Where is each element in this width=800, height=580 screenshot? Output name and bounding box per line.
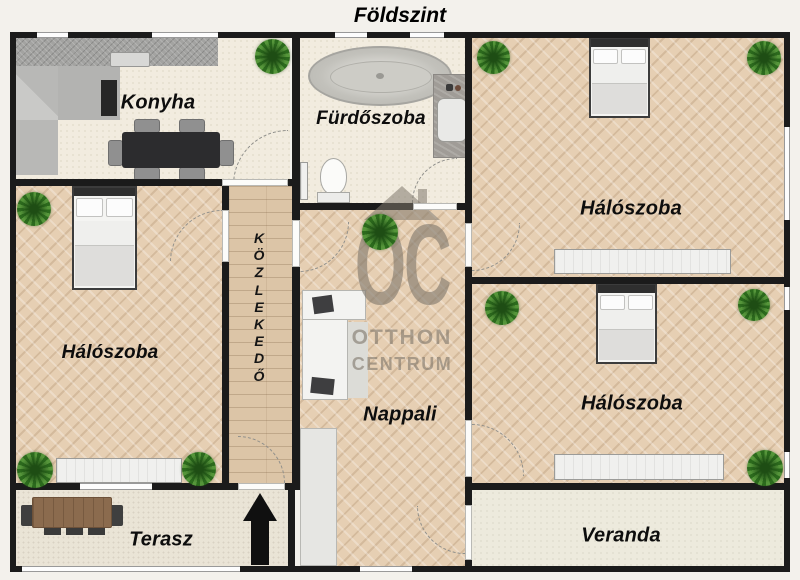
potted-plant-icon bbox=[477, 41, 510, 74]
washbasin bbox=[437, 98, 467, 142]
floor-title: Földszint bbox=[0, 4, 800, 28]
radiator bbox=[554, 454, 724, 480]
potted-plant-icon bbox=[17, 192, 51, 226]
door-bedroom-bottom-right bbox=[465, 420, 472, 477]
wall bbox=[10, 179, 222, 186]
door-entrance bbox=[238, 483, 285, 490]
door-bathroom bbox=[413, 203, 457, 210]
window bbox=[335, 32, 367, 38]
wall bbox=[10, 32, 16, 572]
door-veranda bbox=[465, 505, 472, 560]
wall bbox=[10, 32, 790, 38]
wall bbox=[465, 477, 472, 505]
room-label-living-room: Nappali bbox=[363, 404, 437, 427]
window bbox=[784, 452, 790, 478]
dining-chair bbox=[179, 119, 205, 133]
window bbox=[784, 287, 790, 310]
window bbox=[152, 32, 218, 38]
dining-chair bbox=[134, 119, 160, 133]
window bbox=[22, 566, 240, 572]
door-bedroom-left bbox=[222, 210, 229, 262]
radiator bbox=[300, 162, 308, 200]
potted-plant-icon bbox=[747, 41, 781, 75]
bathroom-faucet bbox=[446, 84, 453, 91]
wall bbox=[472, 483, 790, 490]
potted-plant-icon bbox=[738, 289, 770, 321]
room-label-kitchen: Konyha bbox=[121, 92, 196, 115]
potted-plant-icon bbox=[362, 214, 398, 250]
radiator bbox=[554, 249, 731, 274]
bed bbox=[72, 186, 137, 290]
terrace-table bbox=[32, 497, 112, 528]
bed bbox=[596, 283, 657, 364]
bathroom-accessory bbox=[455, 85, 461, 91]
floor-plan: Földszint OC OTTHON CENTRUM bbox=[0, 0, 800, 580]
room-label-bathroom: Fürdőszoba bbox=[316, 108, 426, 130]
door-kitchen bbox=[222, 179, 288, 186]
door-bedroom-top-right bbox=[465, 223, 472, 267]
window bbox=[80, 483, 152, 490]
wall bbox=[465, 277, 790, 284]
wall bbox=[222, 186, 229, 210]
potted-plant-icon bbox=[747, 450, 783, 486]
wall bbox=[222, 262, 229, 490]
dining-chair bbox=[219, 140, 234, 166]
room-label-terrace: Terasz bbox=[129, 529, 193, 552]
wall bbox=[292, 32, 300, 220]
wall bbox=[465, 560, 472, 572]
window bbox=[37, 32, 68, 38]
room-label-bedroom-left: Hálószoba bbox=[62, 342, 159, 364]
room-label-hallway: KÖZLEKEDŐ bbox=[252, 230, 266, 385]
kitchen-oven bbox=[101, 80, 117, 116]
watermark-otthon-centrum: OC OTTHON CENTRUM bbox=[320, 186, 484, 375]
bathtub bbox=[308, 46, 452, 106]
window bbox=[410, 32, 444, 38]
entrance-arrow-icon bbox=[243, 493, 277, 521]
window bbox=[360, 566, 412, 572]
window bbox=[784, 127, 790, 220]
door-living-room bbox=[292, 220, 300, 267]
watermark-line1: OTTHON bbox=[320, 326, 484, 350]
kitchen-corner-cabinet bbox=[16, 70, 58, 120]
potted-plant-icon bbox=[182, 452, 216, 486]
potted-plant-icon bbox=[17, 452, 53, 488]
room-label-bedroom-top-right: Hálószoba bbox=[580, 198, 682, 221]
kitchen-sink bbox=[110, 52, 150, 67]
sideboard bbox=[300, 428, 337, 566]
room-label-veranda: Veranda bbox=[581, 525, 661, 548]
watermark-line2: CENTRUM bbox=[320, 354, 484, 375]
entrance-arrow-icon bbox=[251, 520, 269, 565]
potted-plant-icon bbox=[255, 39, 290, 74]
radiator bbox=[56, 458, 182, 483]
wall bbox=[288, 483, 295, 572]
potted-plant-icon bbox=[485, 291, 519, 325]
wall bbox=[292, 267, 300, 490]
bed bbox=[589, 37, 650, 118]
room-label-bedroom-bottom-right: Hálószoba bbox=[581, 393, 683, 416]
dining-table bbox=[122, 132, 220, 168]
sofa-pillow bbox=[310, 377, 335, 395]
dining-chair bbox=[108, 140, 123, 166]
